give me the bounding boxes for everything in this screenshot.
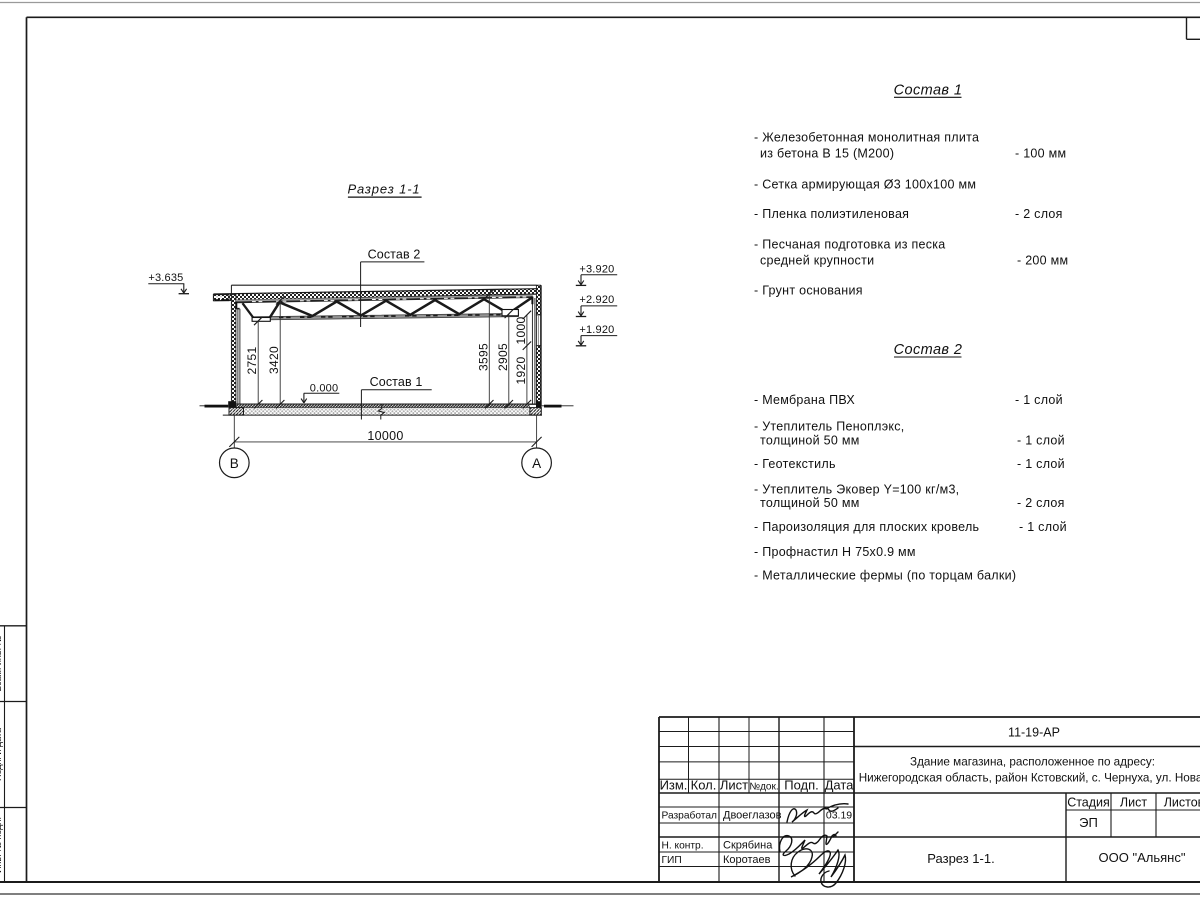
svg-text:Здание магазина, расположенное: Здание магазина, расположенное по адресу… — [910, 756, 1155, 769]
svg-text:- Утеплитель Эковер Y=100 кг/м: - Утеплитель Эковер Y=100 кг/м3, — [754, 483, 959, 497]
svg-text:+3.635: +3.635 — [148, 272, 183, 284]
svg-text:- 2 слоя: - 2 слоя — [1017, 496, 1065, 510]
svg-text:Лист: Лист — [1120, 796, 1147, 810]
svg-text:3420: 3420 — [267, 346, 281, 374]
svg-text:Состав 2: Состав 2 — [368, 247, 421, 261]
svg-text:- Пароизоляция для плоских кро: - Пароизоляция для плоских кровель — [754, 520, 979, 534]
svg-text:1920: 1920 — [514, 357, 528, 385]
svg-text:Состав 1: Состав 1 — [370, 375, 423, 389]
svg-text:Состав 2: Состав 2 — [894, 342, 963, 358]
svg-text:Изм.: Изм. — [660, 778, 688, 793]
svg-text:А: А — [532, 456, 541, 471]
svg-text:Скрябина: Скрябина — [723, 840, 773, 852]
svg-text:Лист: Лист — [720, 778, 748, 793]
svg-text:- Железобетонная монолитная п: - Железобетонная монолитная плита — [754, 131, 979, 145]
svg-text:Разрез 1-1.: Разрез 1-1. — [927, 851, 994, 866]
svg-text:- Геотекстиль: - Геотекстиль — [754, 457, 836, 471]
svg-text:Нижегородская область, район К: Нижегородская область, район Кстовский, … — [859, 772, 1200, 785]
svg-text:- Профнастил Н 75х0.9 мм: - Профнастил Н 75х0.9 мм — [754, 545, 916, 559]
svg-text:- Грунт основания: - Грунт основания — [754, 284, 863, 298]
svg-text:2751: 2751 — [245, 347, 259, 375]
svg-text:№док.: №док. — [749, 782, 778, 793]
svg-text:3595: 3595 — [476, 343, 490, 371]
svg-text:10000: 10000 — [367, 429, 403, 443]
svg-text:- Песчаная подготовка из песка: - Песчаная подготовка из песка — [754, 238, 946, 252]
svg-text:из бетона В 15 (М200): из бетона В 15 (М200) — [760, 146, 894, 160]
svg-text:- Металлические фермы (по торц: - Металлические фермы (по торцам балки) — [754, 569, 1016, 583]
svg-text:- Сетка армирующая Ø3 100х100: - Сетка армирующая Ø3 100х100 мм — [754, 178, 976, 192]
svg-text:2905: 2905 — [496, 343, 510, 371]
svg-text:Взам. инв. №: Взам. инв. № — [0, 635, 3, 691]
svg-text:11-19-АР: 11-19-АР — [1008, 726, 1060, 740]
svg-text:- 200 мм: - 200 мм — [1017, 253, 1068, 267]
svg-text:ЭП: ЭП — [1079, 815, 1098, 830]
svg-text:Листов: Листов — [1164, 796, 1200, 810]
svg-text:средней крупности: средней крупности — [760, 253, 874, 267]
svg-text:- Утеплитель Пеноплэкс,: - Утеплитель Пеноплэкс, — [754, 420, 905, 434]
svg-text:1000: 1000 — [514, 317, 528, 345]
svg-text:Коротаев: Коротаев — [723, 854, 771, 866]
svg-text:- 1 слой: - 1 слой — [1017, 457, 1065, 471]
svg-text:Состав 1: Состав 1 — [894, 82, 963, 98]
svg-text:толщиной 50 мм: толщиной 50 мм — [760, 433, 860, 447]
svg-text:Подп.: Подп. — [784, 778, 819, 793]
svg-text:ГИП: ГИП — [662, 855, 682, 866]
svg-text:Подп. и дата: Подп. и дата — [0, 728, 3, 781]
svg-text:Двоеглазов: Двоеглазов — [723, 810, 782, 822]
svg-text:- 100 мм: - 100 мм — [1015, 146, 1066, 160]
svg-text:Разработал: Разработал — [662, 810, 718, 822]
svg-text:ООО "Альянс": ООО "Альянс" — [1099, 850, 1186, 865]
svg-text:толщиной 50 мм: толщиной 50 мм — [760, 496, 860, 510]
svg-text:- 1 слой: - 1 слой — [1017, 433, 1065, 447]
svg-text:Разрез 1-1: Разрез 1-1 — [348, 181, 421, 196]
svg-text:Дата: Дата — [825, 778, 855, 793]
svg-text:Кол.: Кол. — [691, 778, 717, 793]
svg-text:- Пленка полиэтиленовая: - Пленка полиэтиленовая — [754, 207, 909, 221]
svg-text:Стадия: Стадия — [1067, 796, 1110, 810]
svg-text:- 1 слой: - 1 слой — [1015, 393, 1063, 407]
svg-text:Инв. № подл.: Инв. № подл. — [0, 817, 3, 873]
svg-text:- 1 слой: - 1 слой — [1019, 520, 1067, 534]
svg-text:+3.920: +3.920 — [579, 264, 614, 276]
svg-text:0.000: 0.000 — [310, 382, 339, 394]
svg-text:В: В — [230, 456, 239, 471]
svg-text:Н. контр.: Н. контр. — [662, 841, 704, 852]
svg-text:- Мембрана ПВХ: - Мембрана ПВХ — [754, 393, 855, 407]
svg-text:+2.920: +2.920 — [579, 294, 614, 306]
svg-text:+1.920: +1.920 — [579, 324, 614, 336]
svg-text:- 2 слоя: - 2 слоя — [1015, 207, 1063, 221]
